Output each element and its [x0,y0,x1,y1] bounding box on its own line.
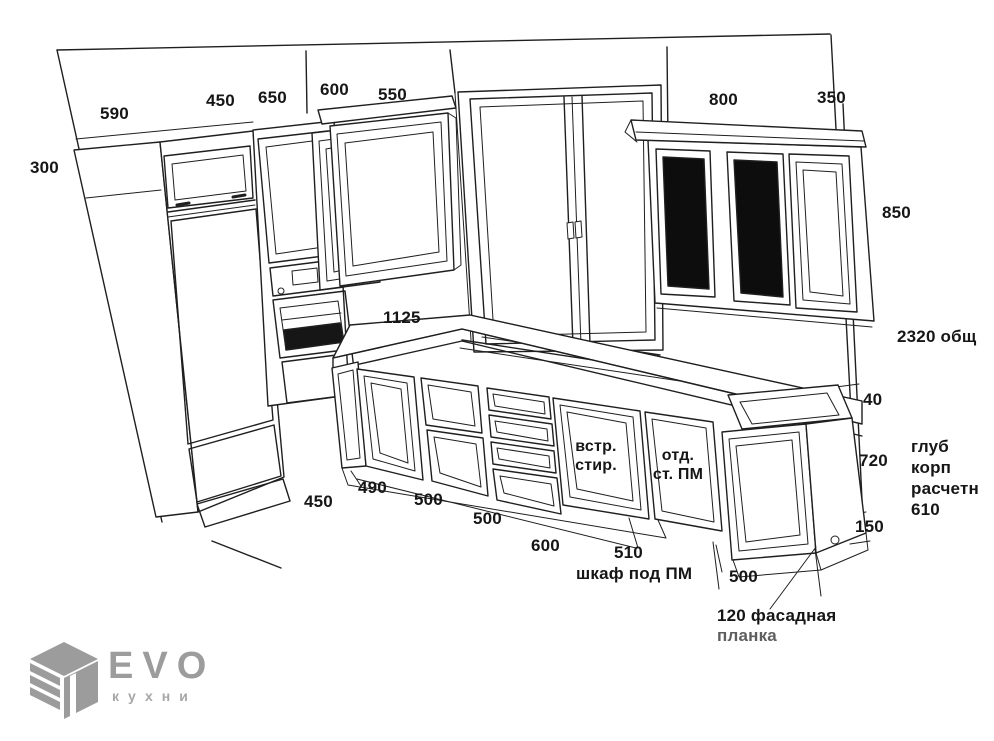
dishwasher-caption-label: шкаф под ПМ [576,564,692,583]
dim-1125-label: 1125 [383,308,421,327]
dim-300-label: 300 [30,158,59,177]
dim-150-label: 150 [855,517,884,536]
washer-door-label: встр. стир. [566,437,626,475]
dishwasher-door-label: отд. ст. ПМ [642,446,714,484]
dim-590-label: 590 [100,104,129,123]
dim-500-a-label: 500 [414,490,443,509]
fridge-top-handle-icon [177,203,189,205]
dim-510-label: 510 [614,543,643,562]
facade-note-sub-label: планка [717,626,777,645]
dark-glass-door [663,157,709,289]
evo-logo: EVO кухни [26,642,286,732]
dim-450-top-label: 450 [206,91,235,110]
floor-line [212,541,281,568]
dim-550-label: 550 [378,85,407,104]
facade-note-label: 120 фасадная [717,606,836,625]
kitchen-perspective-drawing [0,0,994,741]
corner-upper-cabinets [312,96,461,290]
dim-500-c-label: 500 [729,567,758,586]
right-wall-cabinets [625,120,874,327]
dim-800-label: 800 [709,90,738,109]
dim-500-b-label: 500 [473,509,502,528]
dark-glass-door [734,160,783,297]
fridge-top-handle-icon [233,195,245,197]
dim-490-label: 490 [358,478,387,497]
logo-brand-text: EVO [108,647,215,685]
depth-note-label: глуб корп расчетн 610 [911,436,979,520]
kitchen-design-sheet: 590 450 650 600 550 800 350 300 850 2320… [0,0,994,741]
dim-650-label: 650 [258,88,287,107]
dim-850-label: 850 [882,203,911,222]
dim-600-top-label: 600 [320,80,349,99]
dim-total-height-label: 2320 общ [897,327,976,346]
dim-720-label: 720 [859,451,888,470]
dim-450-bottom-label: 450 [304,492,333,511]
logo-division-text: кухни [112,688,197,704]
evo-cube-icon [26,642,102,728]
dim-600-bottom-label: 600 [531,536,560,555]
dim-40-label: 40 [863,390,882,409]
dim-350-label: 350 [817,88,846,107]
